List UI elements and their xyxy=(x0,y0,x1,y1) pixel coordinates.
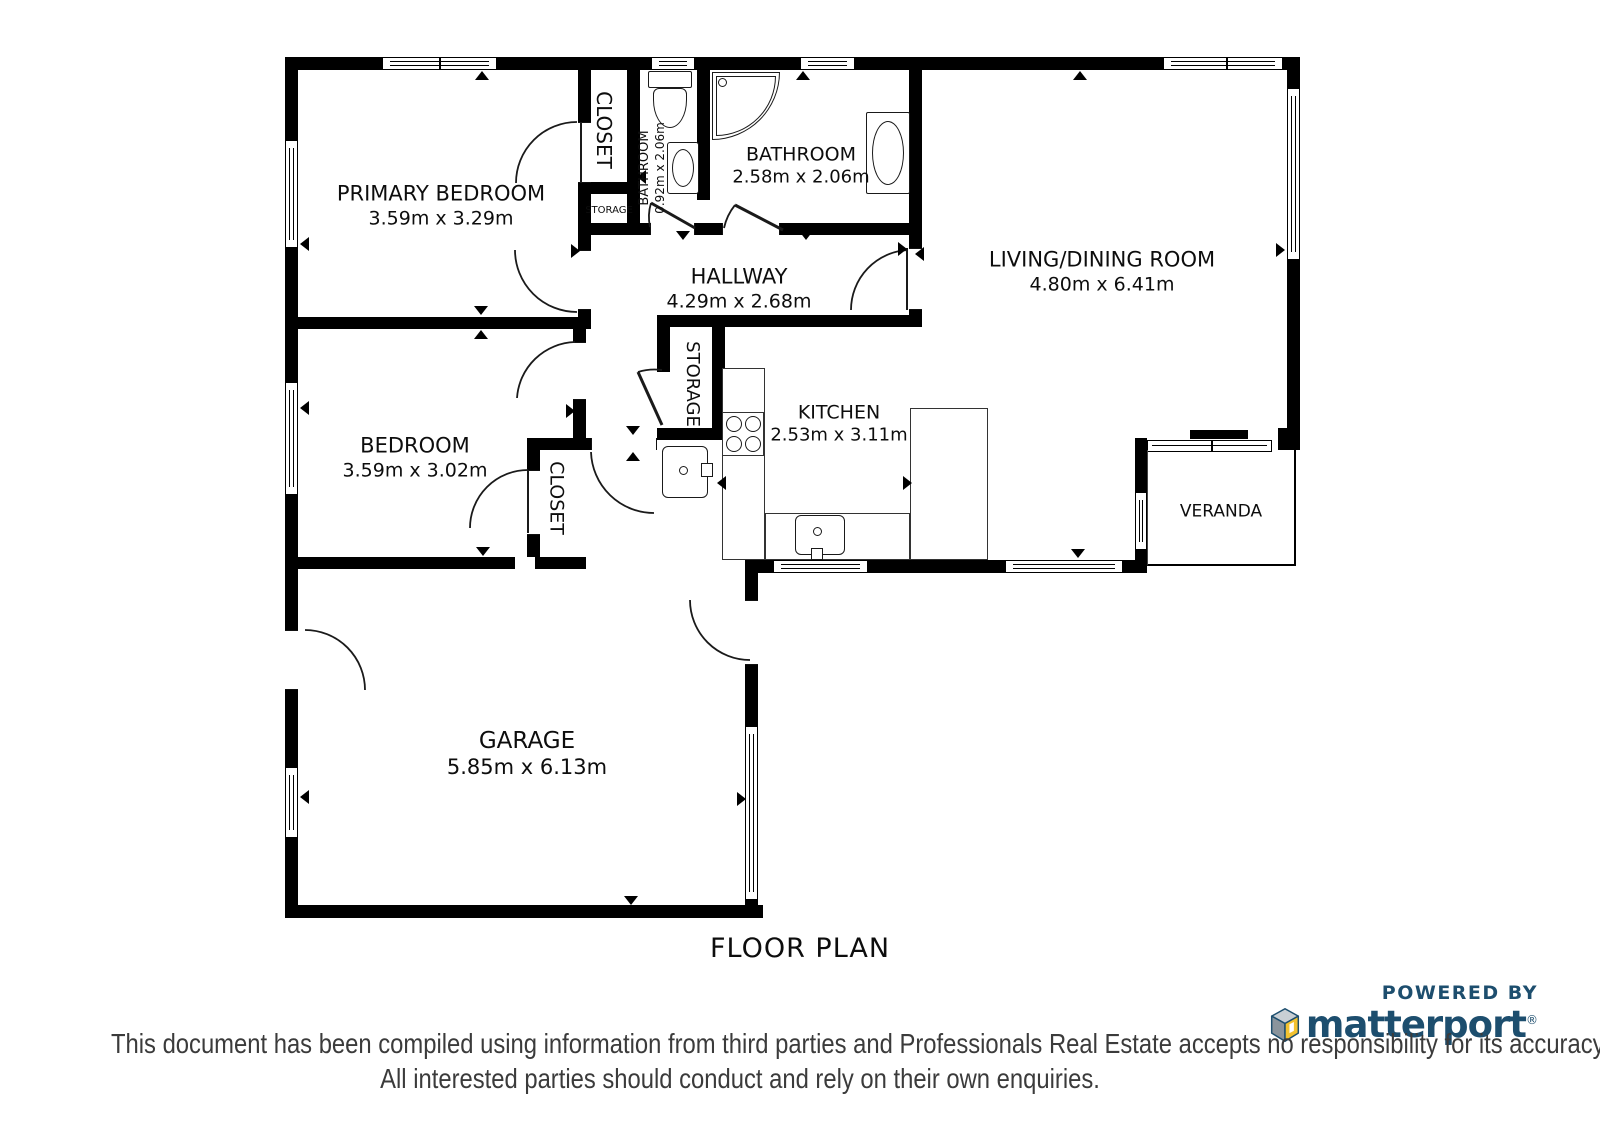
stove-burner-icon xyxy=(726,436,742,452)
stove-burner-icon xyxy=(726,416,742,432)
shower-drain-icon xyxy=(718,78,727,87)
disclaimer-line-2: All interested parties should conduct an… xyxy=(111,1063,1369,1095)
wall-segment xyxy=(527,535,540,557)
wall-segment xyxy=(1135,438,1147,492)
door-arc xyxy=(591,452,654,513)
page-title: FLOOR PLAN xyxy=(0,933,1600,964)
wall-segment xyxy=(285,905,763,918)
direction-marker-icon xyxy=(676,231,690,240)
direction-marker-icon xyxy=(915,247,924,261)
room-label-storage-small: STORAGE xyxy=(585,205,633,217)
room-label-primary-bedroom: PRIMARY BEDROOM 3.59m x 3.29m xyxy=(337,182,545,231)
room-dims: 3.59m x 3.29m xyxy=(337,207,545,230)
direction-marker-icon xyxy=(300,237,309,251)
wall-segment xyxy=(285,317,591,329)
wall-segment xyxy=(909,70,922,248)
door-arc xyxy=(690,600,750,660)
wall-segment xyxy=(591,223,650,235)
wall-segment xyxy=(285,690,298,767)
wall-segment xyxy=(657,315,670,372)
room-dims: 3.59m x 3.02m xyxy=(343,459,488,482)
window xyxy=(285,382,298,495)
room-dims: 2.53m x 3.11m xyxy=(770,425,907,447)
wall-segment xyxy=(1135,550,1147,567)
window xyxy=(800,57,855,70)
veranda-beam xyxy=(1190,430,1248,439)
direction-marker-icon xyxy=(737,792,746,806)
direction-marker-icon xyxy=(624,896,638,905)
room-name: LIVING/DINING ROOM xyxy=(989,248,1215,274)
wall-segment xyxy=(527,438,591,450)
wall-segment xyxy=(695,223,722,235)
direction-marker-icon xyxy=(300,401,309,415)
registered-trademark-icon: ® xyxy=(1526,1014,1538,1026)
wall-segment xyxy=(695,57,800,70)
window xyxy=(773,560,868,573)
room-label-bedroom: BEDROOM 3.59m x 3.02m xyxy=(343,434,488,483)
wall-segment xyxy=(578,70,591,122)
wall-segment xyxy=(1278,428,1300,450)
window xyxy=(1287,88,1300,260)
direction-marker-icon xyxy=(626,426,640,435)
door-opening xyxy=(578,250,591,310)
direction-marker-icon xyxy=(903,476,912,490)
window xyxy=(1163,57,1283,70)
room-label-closet-top: CLOSET xyxy=(592,91,616,169)
direction-marker-icon xyxy=(1071,549,1085,558)
door-opening xyxy=(285,630,298,690)
wall-segment xyxy=(535,557,586,569)
direction-marker-icon xyxy=(717,476,726,490)
direction-marker-icon xyxy=(476,547,490,556)
sink-basin xyxy=(672,149,694,187)
door-opening xyxy=(722,223,780,235)
door-opening xyxy=(573,342,586,400)
room-name: BEDROOM xyxy=(343,434,488,460)
window xyxy=(382,57,497,70)
direction-marker-icon xyxy=(1276,243,1285,257)
kitchen-counter xyxy=(910,408,988,560)
room-dims: 0.92m x 2.06m xyxy=(653,122,668,214)
room-label-garage: GARAGE 5.85m x 6.13m xyxy=(447,727,607,781)
wall-segment xyxy=(1287,70,1300,90)
door-opening xyxy=(578,122,591,183)
door-opening xyxy=(591,438,657,450)
wall-segment xyxy=(868,560,1005,573)
door-arc xyxy=(515,250,577,312)
direction-marker-icon xyxy=(1073,71,1087,80)
wall-segment xyxy=(285,70,298,140)
wall-segment xyxy=(490,57,651,70)
room-label-bathroom: BATHROOM 2.58m x 2.06m xyxy=(732,143,869,188)
direction-marker-icon xyxy=(474,306,488,315)
wall-segment xyxy=(657,428,723,440)
direction-marker-icon xyxy=(566,404,575,418)
room-name: BATHROOM xyxy=(637,122,653,214)
wall-segment xyxy=(658,315,922,327)
window xyxy=(285,767,298,838)
toilet-bowl xyxy=(872,121,904,185)
window xyxy=(651,57,695,70)
room-name: KITCHEN xyxy=(770,401,907,424)
direction-marker-icon xyxy=(796,71,810,80)
room-label-veranda: VERANDA xyxy=(1180,502,1262,523)
wall-segment xyxy=(855,57,1163,70)
room-dims: 4.80m x 6.41m xyxy=(989,273,1215,296)
window xyxy=(1005,560,1123,573)
room-dims: 2.58m x 2.06m xyxy=(732,167,869,189)
wall-segment xyxy=(285,248,298,382)
window xyxy=(1135,492,1147,550)
wall-segment xyxy=(750,560,773,573)
wall-segment xyxy=(745,665,758,728)
room-name: BATHROOM xyxy=(732,143,869,166)
wall-segment xyxy=(1287,258,1300,450)
room-label-kitchen: KITCHEN 2.53m x 3.11m xyxy=(770,401,907,446)
faucet-icon xyxy=(813,527,822,536)
direction-marker-icon xyxy=(898,242,907,256)
toilet-tank xyxy=(648,71,692,88)
stove-burner-icon xyxy=(745,416,761,432)
room-name: PRIMARY BEDROOM xyxy=(337,182,545,208)
wall-segment xyxy=(1283,57,1300,70)
room-label-storage-hall: STORAGE xyxy=(681,341,703,427)
direction-marker-icon xyxy=(626,452,640,461)
wall-segment xyxy=(745,898,758,918)
direction-marker-icon xyxy=(300,790,309,804)
wall-segment xyxy=(285,57,395,70)
powered-by-label: POWERED BY xyxy=(1270,982,1538,1004)
room-label-closet-bedroom: CLOSET xyxy=(544,461,567,535)
faucet-base xyxy=(811,548,823,560)
window xyxy=(745,726,758,900)
room-label-bathroom-small: BATHROOM 0.92m x 2.06m xyxy=(637,122,667,214)
direction-marker-icon xyxy=(475,71,489,80)
room-label-hallway: HALLWAY 4.29m x 2.68m xyxy=(667,265,812,314)
room-name: GARAGE xyxy=(447,727,607,755)
faucet-base xyxy=(701,463,713,477)
door-arc xyxy=(305,630,365,690)
faucet-icon xyxy=(679,466,688,475)
direction-marker-icon xyxy=(474,330,488,339)
room-dims: 4.29m x 2.68m xyxy=(667,290,812,313)
room-name: HALLWAY xyxy=(667,265,812,291)
door-arc xyxy=(517,342,575,398)
room-dims: 5.85m x 6.13m xyxy=(447,755,607,781)
window xyxy=(285,140,298,248)
direction-marker-icon xyxy=(571,244,580,258)
wall-segment xyxy=(591,182,640,194)
disclaimer-line-1: This document has been compiled using in… xyxy=(111,1028,1369,1060)
stove-burner-icon xyxy=(745,436,761,452)
door-opening xyxy=(745,600,758,665)
door-opening xyxy=(527,470,540,535)
wall-segment xyxy=(527,450,540,470)
door-leaf xyxy=(638,372,662,425)
door-arc xyxy=(516,122,577,183)
direction-marker-icon xyxy=(799,231,813,240)
door-arc xyxy=(851,250,908,310)
wall-segment xyxy=(573,317,586,342)
room-label-living-dining: LIVING/DINING ROOM 4.80m x 6.41m xyxy=(989,248,1215,297)
kitchen-counter xyxy=(722,368,765,560)
wall-segment xyxy=(285,557,515,569)
